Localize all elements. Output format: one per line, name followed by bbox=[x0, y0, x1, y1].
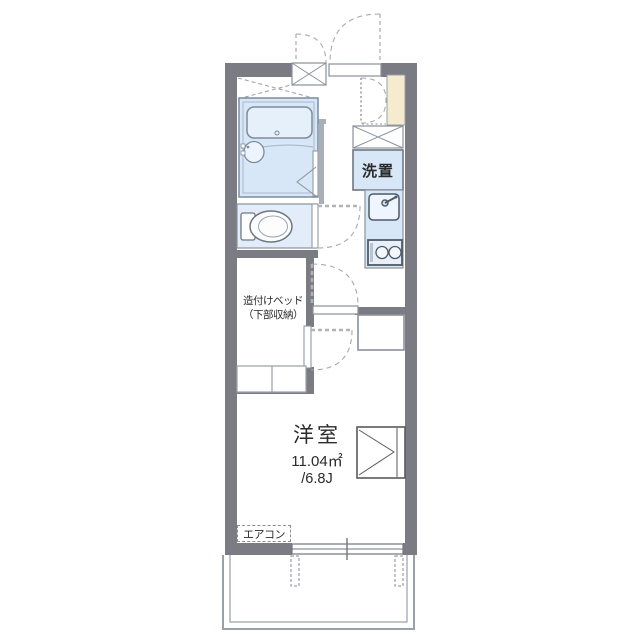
entrance-door-swing bbox=[330, 14, 380, 63]
balcony-marker-left bbox=[291, 556, 299, 586]
balcony bbox=[223, 555, 414, 629]
room-label: 洋室 11.04㎡ /6.8J bbox=[255, 419, 379, 487]
bathtub bbox=[247, 107, 312, 138]
shoe-cabinet bbox=[387, 75, 405, 125]
floor-plan: 洗置 造付けベッド （下部収納） 洋室 11.04㎡ /6.8J エアコン bbox=[0, 0, 640, 640]
wall-bottom-left bbox=[225, 543, 292, 555]
room-door-leaf bbox=[313, 306, 358, 314]
bathroom-door-leaf bbox=[313, 151, 318, 196]
floor-plan-drawing bbox=[0, 0, 640, 640]
bed-door bbox=[304, 326, 352, 370]
counter-space-box bbox=[358, 315, 404, 350]
bed-door-swing bbox=[311, 330, 352, 370]
toilet-door-leaf bbox=[312, 204, 318, 248]
room-area-tatami: /6.8J bbox=[255, 471, 379, 487]
bath-faucet-fixture2 bbox=[241, 151, 245, 155]
wall-toilet-bed-divider bbox=[225, 250, 318, 258]
stove-side-panel bbox=[370, 243, 373, 262]
aircon-label: エアコン bbox=[237, 525, 291, 542]
entry-closet bbox=[361, 75, 405, 125]
wall-bottom-right bbox=[403, 543, 417, 555]
window bbox=[292, 538, 403, 560]
built-in-bed-label: 造付けベッド （下部収納） bbox=[235, 294, 311, 322]
balcony-inner-rail bbox=[230, 555, 407, 622]
meter-box-door-swing bbox=[296, 34, 326, 63]
wall-bath-partition bbox=[319, 122, 324, 204]
bed-door-leaf bbox=[304, 326, 311, 368]
toilet-door-swing bbox=[318, 206, 360, 248]
toilet-room bbox=[237, 204, 360, 248]
storage-box bbox=[353, 126, 403, 148]
room-door-swing bbox=[312, 264, 358, 306]
wall-hall-room-divider bbox=[355, 307, 417, 315]
meter-box bbox=[292, 34, 326, 85]
entrance-door bbox=[329, 14, 381, 76]
bath-faucet-dot bbox=[247, 146, 250, 149]
bathroom bbox=[239, 98, 318, 197]
room-name: 洋室 bbox=[255, 419, 379, 449]
stove-burner-right bbox=[389, 247, 401, 259]
balcony-outer-rail bbox=[223, 555, 414, 629]
entrance-door-leaf bbox=[329, 64, 381, 76]
wall-top-left bbox=[225, 63, 293, 77]
built-in-bed-label-line2: （下部収納） bbox=[235, 308, 311, 322]
washer-space-label: 洗置 bbox=[353, 152, 403, 188]
bath-faucet-fixture bbox=[241, 144, 245, 148]
bifold-door-swing-bottom bbox=[361, 100, 386, 123]
bifold-door-swing-top bbox=[361, 78, 386, 100]
built-in-bed-label-line1: 造付けベッド bbox=[235, 294, 311, 308]
bed-foot-shelf bbox=[237, 366, 306, 392]
stove-burner-left bbox=[376, 247, 388, 259]
room-area-m2: 11.04㎡ bbox=[255, 450, 379, 471]
balcony-marker-right bbox=[395, 556, 403, 586]
kitchen bbox=[365, 190, 403, 268]
kitchen-faucet-tip bbox=[395, 196, 398, 199]
room-door bbox=[312, 264, 358, 314]
bath-sink bbox=[244, 142, 264, 163]
